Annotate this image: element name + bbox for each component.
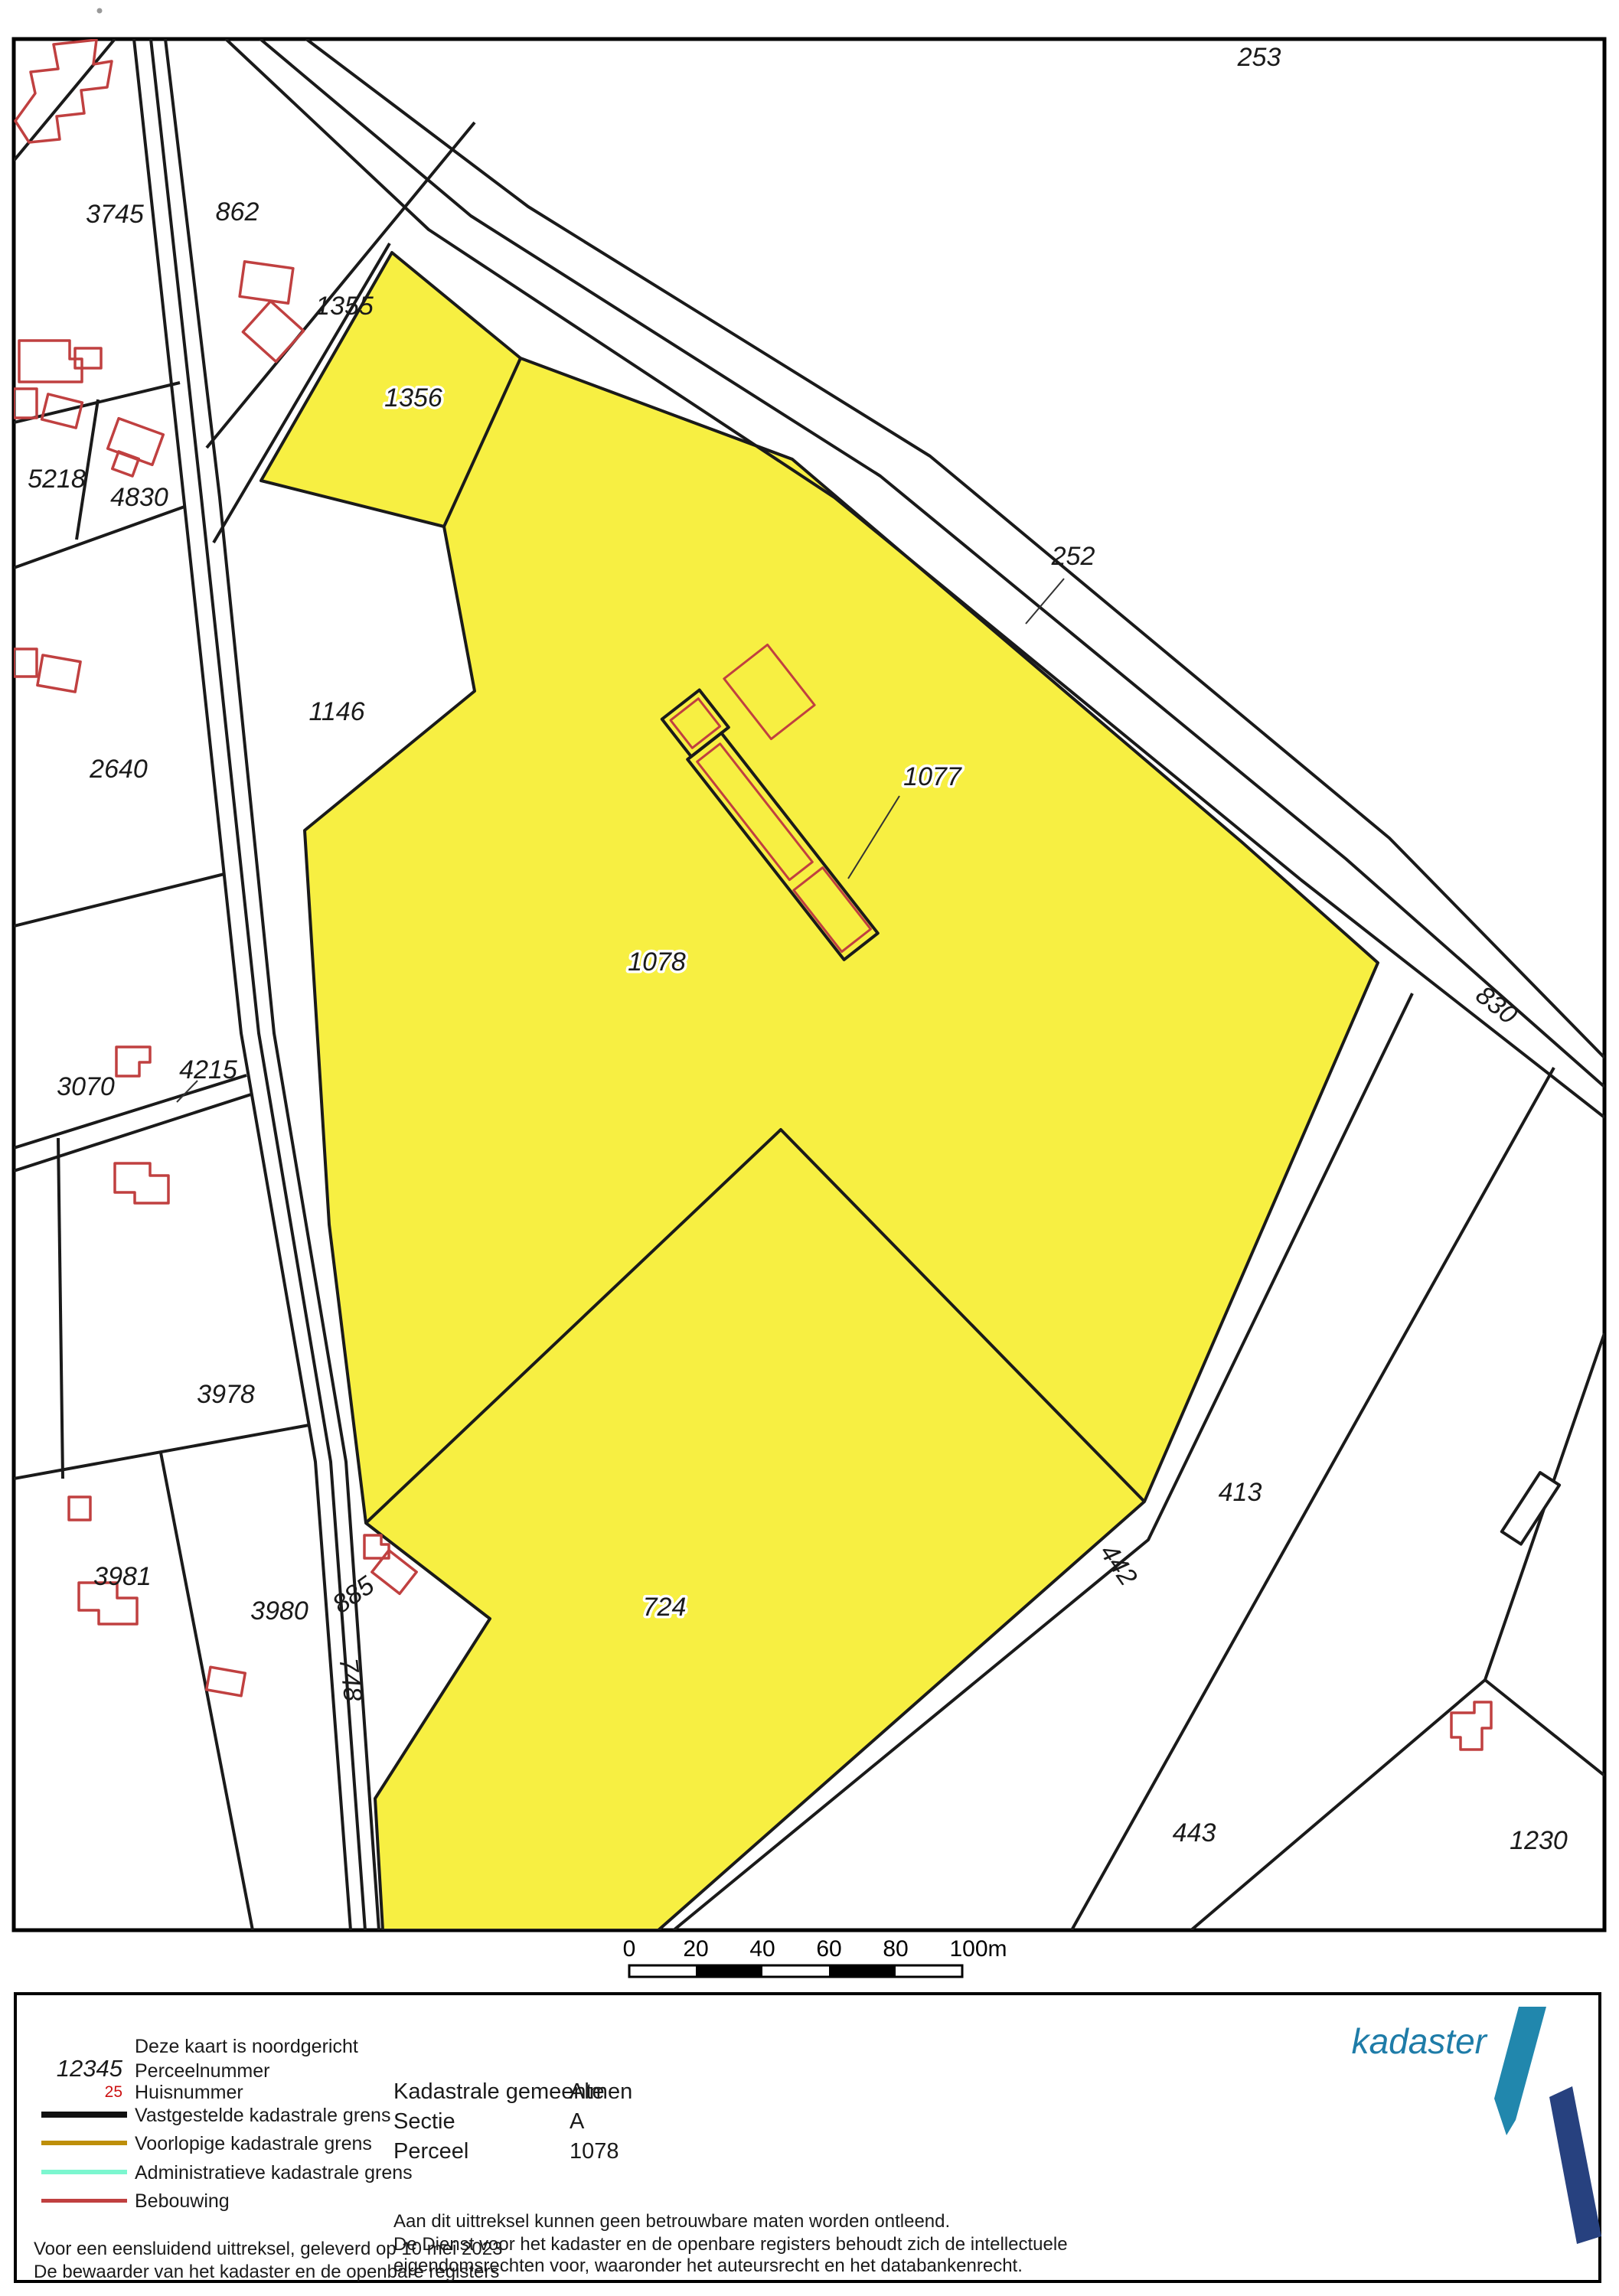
legend-line-vastgesteld (41, 2112, 127, 2118)
parcel-label-3070: 3070 (57, 1072, 115, 1101)
north-note: Deze kaart is noordgericht (135, 2036, 358, 2058)
parcel-label-4215: 4215 (179, 1055, 237, 1084)
cadastral-extract-page: 253 3745 862 1355 1356 5218 4830 1146 26… (0, 0, 1619, 2296)
parcel-label-1230: 1230 (1510, 1826, 1568, 1855)
parcel-label-3980: 3980 (250, 1596, 308, 1626)
parcel-label-1077: 1077 (903, 762, 962, 791)
scale-tick-20: 20 (683, 1936, 708, 1962)
parcel-label-2640: 2640 (89, 755, 148, 784)
logo-bar-navy (1549, 2086, 1601, 2244)
parcel-label-3978: 3978 (197, 1380, 255, 1409)
parcel-label-5218: 5218 (28, 465, 86, 494)
legend-label-voorlopig: Voorlopige kadastrale grens (135, 2133, 372, 2155)
cadastral-map: 253 3745 862 1355 1356 5218 4830 1146 26… (0, 0, 1619, 1990)
scale-tick-0: 0 (623, 1936, 636, 1962)
disclaimer-line3: eigendomsrechten voor, waaronder het aut… (393, 2255, 1023, 2277)
scale-tick-100: 100m (949, 1936, 1007, 1962)
perceel-value: 1078 (570, 2139, 619, 2164)
disclaimer-line2: De Dienst voor het kadaster en de openba… (393, 2234, 1068, 2255)
huisnummer-label: Huisnummer (135, 2082, 243, 2104)
parcel-label-3981: 3981 (93, 1562, 152, 1591)
parcel-label-413: 413 (1219, 1478, 1262, 1507)
parcel-label-443: 443 (1173, 1818, 1216, 1848)
gemeente-value: Almen (570, 2079, 632, 2105)
parcel-label-253: 253 (1237, 43, 1281, 72)
parcel-label-862: 862 (216, 197, 259, 227)
parcel-label-4830: 4830 (110, 483, 168, 512)
parcel-label-1356: 1356 (384, 383, 442, 413)
logo-blade-teal (1494, 2007, 1546, 2135)
stray-dot (97, 8, 103, 14)
parcel-label-1078: 1078 (628, 947, 686, 977)
scale-tick-60: 60 (816, 1936, 841, 1962)
parcel-label-1146: 1146 (308, 697, 364, 726)
legend-label-bebouwing: Bebouwing (135, 2190, 230, 2213)
sectie-value: A (570, 2109, 584, 2135)
legend-label-administratief: Administratieve kadastrale grens (135, 2162, 413, 2184)
parcel-label-252: 252 (1051, 542, 1095, 571)
kadaster-logo-icon (1479, 2005, 1609, 2250)
scale-bar: 0 20 40 60 80 100m (623, 1936, 1007, 1977)
huisnummer-sample: 25 (54, 2083, 122, 2102)
legend-line-administratief (41, 2170, 127, 2174)
parcel-label-3745: 3745 (86, 200, 144, 229)
scale-tick-40: 40 (749, 1936, 775, 1962)
perceelnummer-label: Perceelnummer (135, 2060, 269, 2082)
legend-line-voorlopig (41, 2141, 127, 2145)
perceel-label: Perceel (393, 2139, 468, 2164)
legend-line-bebouwing (41, 2199, 127, 2203)
scale-tick-80: 80 (883, 1936, 908, 1962)
kadaster-logo-text: kadaster (1333, 2020, 1487, 2062)
parcel-label-748: 748 (334, 1656, 368, 1703)
parcel-label-724: 724 (643, 1593, 687, 1622)
legend-label-vastgesteld: Vastgestelde kadastrale grens (135, 2105, 390, 2127)
sectie-label: Sectie (393, 2109, 455, 2135)
perceelnummer-sample: 12345 (54, 2055, 122, 2082)
disclaimer-line1: Aan dit uittreksel kunnen geen betrouwba… (393, 2211, 950, 2232)
parcel-label-1355: 1355 (315, 292, 374, 321)
